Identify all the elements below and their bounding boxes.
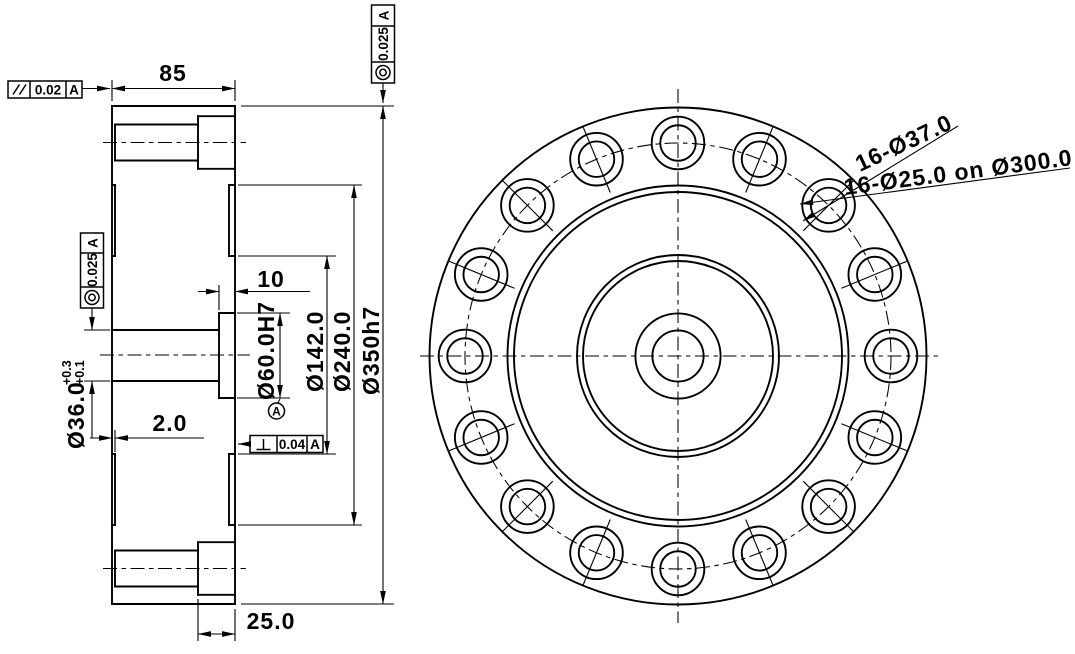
bolt-hole — [448, 248, 515, 301]
hole-tick — [842, 424, 909, 452]
tolerance-lower: +0.1 — [73, 360, 87, 385]
hole-tick — [583, 126, 611, 193]
engineering-drawing: 85 Ø350h7 Ø240.0 Ø142.0 Ø60. — [0, 0, 1075, 654]
side-view-dimensions: 85 Ø350h7 Ø240.0 Ø142.0 Ø60. — [60, 60, 394, 641]
gdt-value: 0.04 — [279, 437, 306, 452]
dim-label: Ø36.0 — [63, 381, 89, 449]
front-view: 16-Ø37.0 16-Ø25.0 on Ø300.0 — [420, 89, 1074, 623]
dim-label: 2.0 — [153, 410, 188, 436]
side-section-view — [100, 106, 250, 604]
bolt-hole — [501, 179, 554, 232]
tolerance-upper: +0.3 — [60, 360, 74, 385]
hole-tick — [448, 261, 515, 289]
gdt-value: 0.025 — [85, 253, 100, 287]
dim-width-85: 85 — [112, 60, 235, 101]
gdt-concentricity-od-frame: 0.025 A — [372, 5, 395, 103]
gdt-datum: A — [310, 437, 320, 452]
bolt-hole — [448, 411, 515, 464]
gdt-datum: A — [86, 238, 101, 248]
bolt-hole — [733, 520, 786, 587]
bolt-hole — [501, 480, 554, 533]
datum-a-symbol: A — [269, 399, 285, 419]
gdt-datum: A — [69, 83, 79, 98]
gdt-datum: A — [377, 10, 392, 20]
hole-tick — [583, 520, 611, 587]
hole-tick — [746, 520, 774, 587]
bolt-hole — [842, 248, 909, 301]
bolt-hole — [570, 126, 623, 193]
drawing-canvas: 85 Ø350h7 Ø240.0 Ø142.0 Ø60. — [0, 0, 1075, 654]
bolt-hole — [570, 520, 623, 587]
dim-center-bore-36: Ø36.0 +0.3 +0.1 — [60, 308, 110, 449]
gdt-value: 0.025 — [376, 27, 391, 61]
dim-label: Ø350h7 — [358, 306, 384, 395]
dim-label: 85 — [159, 60, 187, 86]
bolt-hole — [842, 411, 909, 464]
dim-hub-bore-60: Ø60.0H7 A — [237, 301, 290, 419]
dim-label: 25.0 — [247, 608, 296, 634]
hole-tick — [842, 261, 909, 289]
callout-bolt-holes: 16-Ø25.0 on Ø300.0 — [800, 144, 1074, 204]
dim-counterbore-depth-25: 25.0 — [198, 599, 295, 641]
gdt-concentricity-bore-frame: 0.025 A — [81, 233, 104, 308]
hole-tick — [746, 126, 774, 193]
gdt-perpendicularity-frame: 0.04 A — [238, 436, 323, 453]
hole-tick — [448, 424, 515, 452]
dim-label: Ø142.0 — [302, 311, 328, 392]
bolt-hole — [733, 126, 786, 193]
dim-face-step-2: 2.0 — [90, 410, 204, 452]
gdt-parallelism-frame: 0.02 A — [8, 81, 110, 98]
dim-label: 10 — [257, 266, 285, 292]
bolt-hole — [802, 480, 855, 533]
datum-label: A — [272, 405, 281, 419]
gdt-value: 0.02 — [35, 83, 61, 98]
dim-label: Ø60.0H7 — [253, 301, 279, 400]
dim-label: Ø240.0 — [329, 311, 355, 392]
